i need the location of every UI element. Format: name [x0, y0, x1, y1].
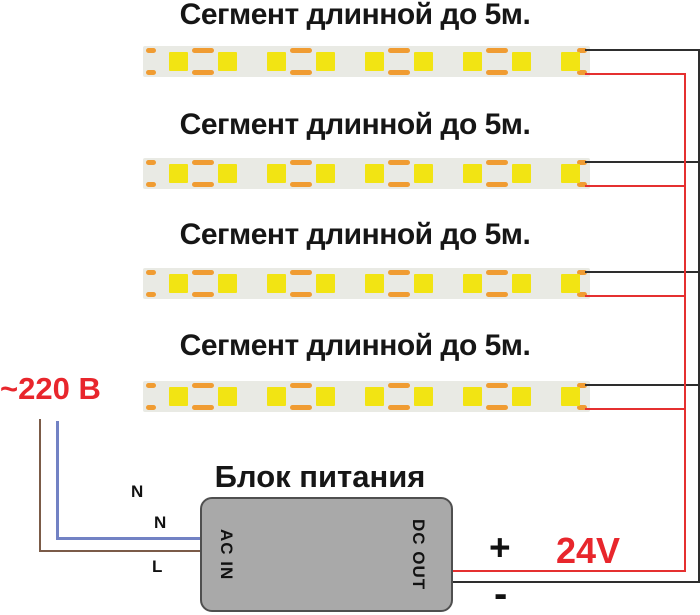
led-chip — [267, 52, 286, 71]
cut-mark-icon — [388, 70, 410, 75]
cut-mark-icon — [192, 160, 214, 165]
led-chip — [561, 274, 580, 293]
segment-title: Сегмент длинной до 5м. — [180, 220, 531, 250]
led-chip — [365, 52, 384, 71]
wire-label-l: L — [152, 558, 162, 575]
led-chip — [267, 387, 286, 406]
led-chip — [218, 52, 237, 71]
solder-pad-icon — [146, 270, 156, 275]
cut-mark-icon — [192, 182, 214, 187]
led-chip — [365, 387, 384, 406]
led-chip — [414, 52, 433, 71]
segment-title: Сегмент длинной до 5м. — [180, 331, 531, 361]
cut-mark-icon — [486, 405, 508, 410]
neutral-wire-vertical — [56, 421, 59, 540]
cut-mark-icon — [388, 292, 410, 297]
led-chip — [218, 274, 237, 293]
led-chip — [512, 164, 531, 183]
led-chip — [218, 164, 237, 183]
neutral-wire-horizontal — [56, 537, 202, 540]
psu-negative-output-wire — [453, 581, 700, 583]
cut-mark-icon — [388, 383, 410, 388]
cut-mark-icon — [192, 270, 214, 275]
dc-out-label: DC OUT — [408, 497, 428, 612]
led-chip — [169, 164, 188, 183]
dc-minus-label: - — [494, 574, 507, 614]
led-chip — [169, 387, 188, 406]
dc-plus-label: + — [489, 529, 511, 566]
cut-mark-icon — [290, 48, 312, 53]
led-chip — [316, 164, 335, 183]
cut-mark-icon — [486, 270, 508, 275]
led-strip — [143, 46, 590, 77]
solder-pad-icon — [146, 160, 156, 165]
cut-mark-icon — [290, 270, 312, 275]
cut-mark-icon — [388, 48, 410, 53]
segment-title: Сегмент длинной до 5м. — [180, 110, 531, 140]
cut-mark-icon — [192, 383, 214, 388]
led-chip — [267, 274, 286, 293]
segment-3-positive-wire — [585, 295, 686, 297]
ac-voltage-label: ~220 В — [0, 373, 101, 404]
solder-pad-icon — [146, 182, 156, 187]
cut-mark-icon — [486, 48, 508, 53]
led-chip — [316, 387, 335, 406]
dc-voltage-label: 24V — [556, 533, 620, 569]
solder-pad-icon — [146, 70, 156, 75]
led-chip — [463, 52, 482, 71]
led-strip — [143, 381, 590, 412]
cut-mark-icon — [290, 292, 312, 297]
cut-mark-icon — [486, 292, 508, 297]
ac-in-label: AC IN — [216, 497, 236, 612]
cut-mark-icon — [192, 70, 214, 75]
wire-label-n1: N — [131, 483, 143, 500]
segment-2-negative-wire — [585, 161, 700, 163]
segment-1-positive-wire — [585, 73, 686, 75]
cut-mark-icon — [486, 383, 508, 388]
led-chip — [169, 274, 188, 293]
live-wire-vertical — [39, 419, 41, 552]
led-chip — [463, 274, 482, 293]
led-chip — [561, 387, 580, 406]
led-chip — [169, 52, 188, 71]
led-chip — [414, 164, 433, 183]
led-chip — [561, 164, 580, 183]
led-chip — [267, 164, 286, 183]
solder-pad-icon — [146, 405, 156, 410]
wire-label-n2: N — [154, 514, 166, 531]
segment-1-negative-wire — [585, 49, 700, 51]
cut-mark-icon — [192, 292, 214, 297]
live-wire-horizontal — [39, 550, 202, 552]
led-chip — [414, 274, 433, 293]
cut-mark-icon — [192, 405, 214, 410]
cut-mark-icon — [388, 405, 410, 410]
led-strip — [143, 268, 590, 299]
cut-mark-icon — [290, 383, 312, 388]
led-chip — [463, 164, 482, 183]
cut-mark-icon — [290, 160, 312, 165]
segment-4-negative-wire — [585, 384, 700, 386]
cut-mark-icon — [486, 182, 508, 187]
segment-2-positive-wire — [585, 185, 686, 187]
solder-pad-icon — [146, 292, 156, 297]
led-chip — [316, 274, 335, 293]
cut-mark-icon — [192, 48, 214, 53]
led-strip — [143, 158, 590, 189]
led-chip — [414, 387, 433, 406]
cut-mark-icon — [486, 70, 508, 75]
solder-pad-icon — [146, 48, 156, 53]
led-chip — [512, 52, 531, 71]
cut-mark-icon — [388, 270, 410, 275]
led-chip — [512, 274, 531, 293]
segment-title: Сегмент длинной до 5м. — [180, 0, 531, 30]
cut-mark-icon — [388, 182, 410, 187]
cut-mark-icon — [388, 160, 410, 165]
cut-mark-icon — [290, 70, 312, 75]
positive-bus-wire — [684, 73, 686, 572]
led-chip — [561, 52, 580, 71]
led-chip — [463, 387, 482, 406]
led-chip — [218, 387, 237, 406]
led-chip — [316, 52, 335, 71]
psu-title: Блок питания — [215, 461, 426, 492]
segment-4-positive-wire — [585, 408, 686, 410]
solder-pad-icon — [146, 383, 156, 388]
cut-mark-icon — [486, 160, 508, 165]
segment-3-negative-wire — [585, 271, 700, 273]
led-chip — [365, 274, 384, 293]
wiring-diagram: Сегмент длинной до 5м. Сегмент длинной д… — [0, 0, 700, 615]
cut-mark-icon — [290, 182, 312, 187]
cut-mark-icon — [290, 405, 312, 410]
led-chip — [512, 387, 531, 406]
led-chip — [365, 164, 384, 183]
